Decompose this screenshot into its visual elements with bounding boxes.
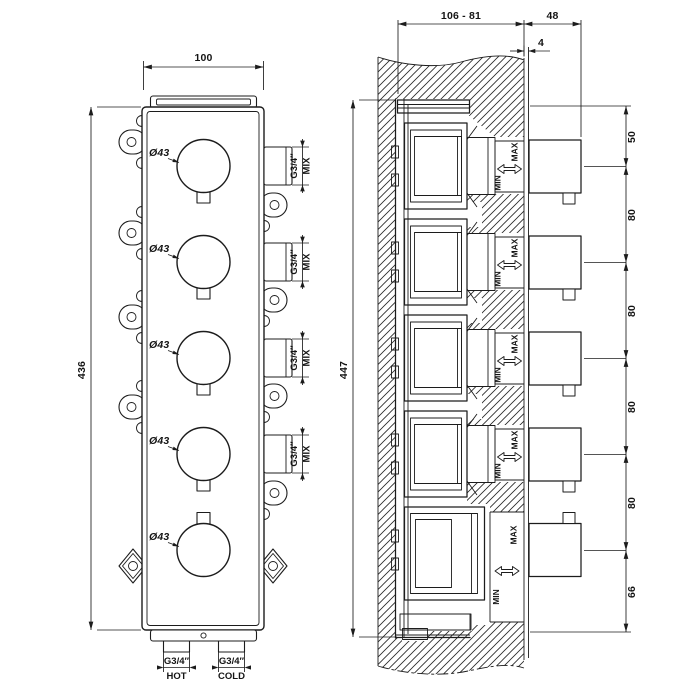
max-label-3: MAX: [510, 334, 520, 353]
dim-label-66: 66: [626, 586, 638, 598]
knob-dia-label-1: Ø43: [149, 147, 169, 159]
dimension-knob-depth-48: 48: [524, 10, 581, 137]
dim-label-4: 4: [538, 37, 544, 49]
min-label-4: MIN: [493, 463, 503, 479]
knob-dia-label-3: Ø43: [149, 339, 169, 351]
mix-thread-label-4: G3/4″: [289, 441, 300, 467]
mix-label-4: MIX: [302, 445, 313, 463]
hot-thread-label: G3/4″: [164, 656, 190, 667]
mix-label-2: MIX: [302, 253, 313, 271]
mix-label-1: MIX: [302, 157, 313, 175]
mix-thread-label-3: G3/4″: [289, 345, 300, 371]
dimension-width-100: 100: [144, 52, 264, 90]
dim-label-80-3: 80: [626, 401, 638, 413]
hot-inlet-stub: [164, 641, 190, 652]
dim-label-depth-range: 106 - 81: [441, 10, 481, 22]
max-label-1: MAX: [510, 142, 520, 161]
mix-thread-label-1: G3/4″: [289, 153, 300, 179]
max-label-5: MAX: [509, 525, 519, 544]
dim-label-50: 50: [626, 131, 638, 143]
bottom-cap: [151, 630, 257, 652]
cold-inlet-stub: [219, 641, 245, 652]
dimension-plate-4: 4: [510, 37, 550, 57]
dim-label-80-2: 80: [626, 305, 638, 317]
technical-drawing-page: 100 436 Ø43 Ø43 Ø43 Ø43 Ø43 G3/4″ MIX G3…: [0, 0, 700, 700]
dim-label-447: 447: [338, 361, 350, 379]
min-label-1: MIN: [493, 175, 503, 191]
max-label-4: MAX: [510, 430, 520, 449]
dimension-hot-inlet: G3/4″ HOT: [157, 652, 196, 682]
knob-dia-label-2: Ø43: [149, 243, 169, 255]
mix-thread-label-2: G3/4″: [289, 249, 300, 275]
knob-dia-label-4: Ø43: [149, 435, 169, 447]
cold-thread-label: G3/4″: [219, 656, 245, 667]
min-label-3: MIN: [493, 367, 503, 383]
knob-dia-label-5: Ø43: [149, 531, 169, 543]
dim-label-80-1: 80: [626, 209, 638, 221]
dimension-cold-inlet: G3/4″ COLD: [212, 652, 251, 682]
dim-label-436: 436: [76, 361, 88, 379]
min-label-2: MIN: [493, 271, 503, 287]
dim-label-48: 48: [546, 10, 558, 22]
max-label-2: MAX: [510, 238, 520, 257]
min-label-5: MIN: [491, 589, 501, 605]
front-view: 100 436 Ø43 Ø43 Ø43 Ø43 Ø43 G3/4″ MIX G3…: [76, 52, 313, 682]
mix-label-3: MIX: [302, 349, 313, 367]
section-view: MAX MIN MAX MIN MAX MIN MAX MIN MAX MIN …: [338, 10, 638, 674]
cold-label: COLD: [218, 671, 245, 682]
wall-face-plate: [524, 47, 529, 660]
valve-installation-drawing: 100 436 Ø43 Ø43 Ø43 Ø43 Ø43 G3/4″ MIX G3…: [0, 0, 700, 700]
plaster-guard-top: [151, 96, 257, 108]
dim-label-80-4: 80: [626, 497, 638, 509]
dim-label-100: 100: [194, 52, 212, 64]
hot-label: HOT: [166, 671, 186, 682]
